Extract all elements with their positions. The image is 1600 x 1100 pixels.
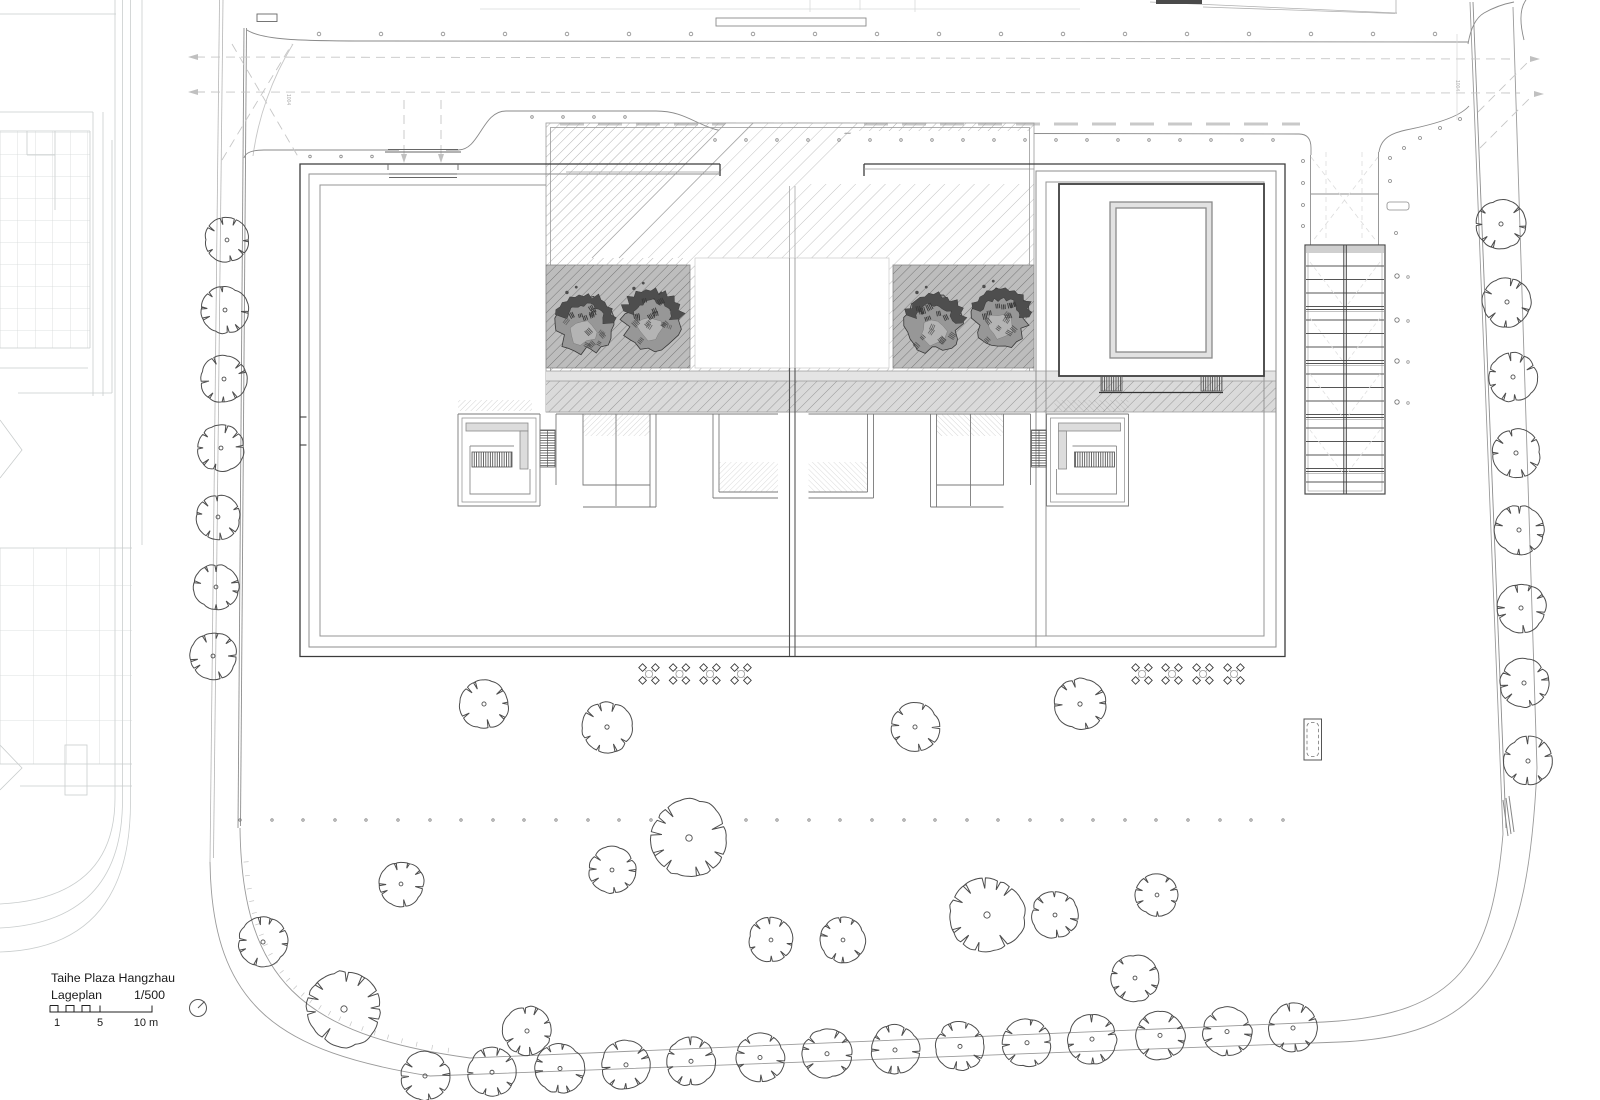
svg-text:1: 1 [54,1017,60,1029]
svg-text:5: 5 [97,1017,103,1029]
svg-text:1/500: 1/500 [134,988,165,1002]
svg-text:Lageplan: Lageplan [51,988,102,1002]
svg-text:1004: 1004 [285,94,291,105]
svg-text:Taihe Plaza Hangzhau: Taihe Plaza Hangzhau [51,971,175,985]
svg-text:10 m: 10 m [134,1017,158,1029]
